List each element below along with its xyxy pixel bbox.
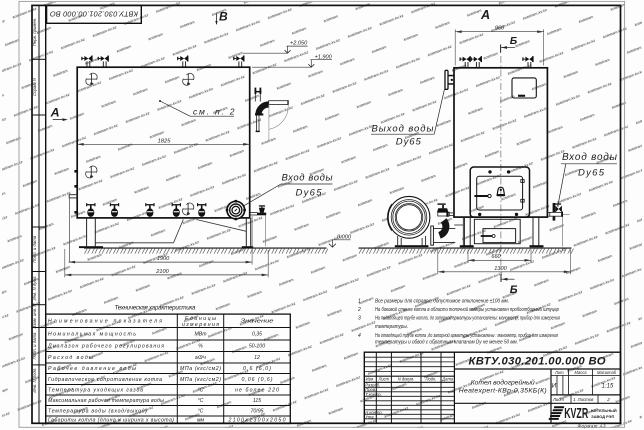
svg-text:1:15: 1:15: [602, 384, 614, 390]
svg-text:Техническая характеристика: Техническая характеристика: [115, 305, 197, 312]
svg-text:МВт: МВт: [194, 332, 207, 338]
svg-text:Наименование показателя: Наименование показателя: [48, 319, 162, 325]
svg-text:2: 2: [357, 307, 361, 313]
svg-text:Масса: Масса: [574, 370, 587, 375]
svg-text:660: 660: [491, 254, 501, 260]
svg-text:Справ. N: Справ. N: [32, 77, 37, 96]
svg-text:температуры.: температуры.: [375, 324, 408, 330]
svg-text:Температура воды (вход/выход): Температура воды (вход/выход): [48, 409, 147, 415]
svg-text:%: %: [198, 344, 203, 350]
svg-text:Heatexpert-КВр-0,35КБ(К): Heatexpert-КВр-0,35КБ(К): [459, 387, 547, 394]
svg-text:А: А: [480, 8, 490, 22]
svg-text:115: 115: [253, 398, 261, 404]
svg-text:Подп.: Подп.: [426, 377, 437, 382]
svg-text:°С: °С: [198, 398, 204, 404]
svg-text:N докум.: N докум.: [398, 377, 415, 382]
svg-text:измерения: измерения: [182, 322, 219, 328]
svg-text:На подводящей трубе котла, до: На подводящей трубе котла, до запорной а…: [375, 315, 560, 322]
svg-text:Лист: Лист: [552, 397, 564, 402]
svg-text:1: 1: [358, 299, 361, 305]
svg-text:Изм.: Изм.: [366, 377, 375, 382]
svg-text:Б: Б: [510, 35, 518, 47]
svg-text:температуры и обвод с обратным: температуры и обвод с обратным клапаном …: [375, 340, 518, 346]
svg-text:0,35: 0,35: [252, 332, 262, 338]
svg-text:Подп. и дата: Подп. и дата: [32, 332, 37, 360]
svg-text:Расход воды: Расход воды: [48, 355, 93, 361]
svg-text:0,6 (6,0): 0,6 (6,0): [243, 366, 271, 372]
svg-text:1300: 1300: [494, 266, 507, 272]
svg-text:Рабочее давление воды: Рабочее давление воды: [48, 366, 136, 372]
svg-text:Утв.: Утв.: [365, 414, 374, 419]
svg-text:МПа (кгс/см2): МПа (кгс/см2): [180, 366, 221, 372]
svg-text:50-100: 50-100: [249, 344, 265, 350]
svg-text:Подп. и дата: Подп. и дата: [32, 235, 37, 263]
svg-text:12: 12: [254, 355, 260, 361]
svg-text:Листов: Листов: [577, 397, 594, 402]
svg-text:1900: 1900: [157, 256, 170, 262]
svg-text:Значение: Значение: [241, 319, 274, 325]
svg-text:На боковой стенке котла в обла: На боковой стенке котла в области топочн…: [375, 306, 559, 313]
svg-text:Формат А3: Формат А3: [578, 423, 607, 428]
svg-text:Гидравлическое сопротивление к: Гидравлическое сопротивление котла: [48, 377, 162, 383]
svg-text:Инв. N подл.: Инв. N подл.: [32, 367, 37, 392]
svg-text:Взам. инв. N: Взам. инв. N: [32, 303, 37, 329]
svg-text:Все размеры для справок, допус: Все размеры для справок, допустимое откл…: [375, 299, 509, 305]
svg-text:Перв. примен.: Перв. примен.: [32, 18, 37, 47]
svg-text:Б: Б: [510, 284, 518, 296]
svg-text:Котел водогрейный: Котел водогрейный: [471, 378, 535, 386]
svg-text:Лит.: Лит.: [554, 370, 565, 375]
svg-text:не более 220: не более 220: [235, 388, 279, 394]
svg-text:Лист: Лист: [378, 377, 390, 382]
svg-text:КОТЕЛЬНЫЙ: КОТЕЛЬНЫЙ: [591, 408, 617, 413]
svg-text:Максимальная рабочая температу: Максимальная рабочая температура воды: [48, 398, 164, 404]
svg-text:ЗАВОД РЭП: ЗАВОД РЭП: [591, 414, 614, 419]
svg-text:0,06 (0,6): 0,06 (0,6): [242, 377, 273, 383]
svg-text:+2.050: +2.050: [290, 41, 308, 47]
svg-text:Габариты котла (длина х ширина: Габариты котла (длина х ширина х высота): [48, 418, 174, 424]
svg-text:°С: °С: [198, 409, 204, 415]
svg-text:°С: °С: [198, 388, 204, 394]
svg-text:Dy65: Dy65: [578, 168, 605, 179]
svg-text:КВТУ.030.201.00.000 ВО: КВТУ.030.201.00.000 ВО: [469, 356, 606, 368]
svg-text:м3/ч: м3/ч: [195, 355, 206, 361]
svg-text:1825: 1825: [158, 139, 172, 145]
svg-text:А: А: [50, 106, 60, 120]
svg-text:В: В: [219, 10, 228, 24]
svg-text:И: И: [552, 383, 557, 390]
svg-text:Т.контр.: Т.контр.: [365, 392, 382, 397]
svg-text:Вход воды: Вход воды: [562, 152, 618, 163]
svg-text:Дата: Дата: [441, 377, 454, 382]
svg-text:3: 3: [358, 316, 361, 322]
svg-text:KVZR: KVZR: [564, 406, 588, 422]
svg-text:Dy65: Dy65: [296, 188, 323, 199]
svg-text:Инв. N дубл.: Инв. N дубл.: [32, 276, 37, 301]
svg-text:Масштаб: Масштаб: [597, 370, 617, 375]
svg-text:70/95: 70/95: [251, 409, 264, 415]
svg-text:Вход воды: Вход воды: [282, 172, 333, 183]
svg-text:960: 960: [495, 25, 505, 31]
svg-text:Диапазон рабочего регулировани: Диапазон рабочего регулирования: [47, 344, 164, 350]
svg-text:На отводящей трубе котла ,до з: На отводящей трубе котла ,до запорной ар…: [375, 332, 558, 339]
svg-text:2100: 2100: [155, 269, 169, 275]
svg-text:мм: мм: [197, 418, 205, 424]
svg-text:Температура уходящих газов: Температура уходящих газов: [48, 388, 143, 394]
svg-text:КВТУ.030.201.00.000 ВО: КВТУ.030.201.00.000 ВО: [50, 10, 138, 19]
svg-text:Выход воды: Выход воды: [372, 124, 434, 135]
svg-text:МПа (кгс/см2): МПа (кгс/см2): [180, 377, 221, 383]
svg-text:Dy65: Dy65: [396, 137, 422, 148]
svg-text:+1.900: +1.900: [315, 54, 333, 60]
svg-text:4: 4: [358, 333, 361, 339]
